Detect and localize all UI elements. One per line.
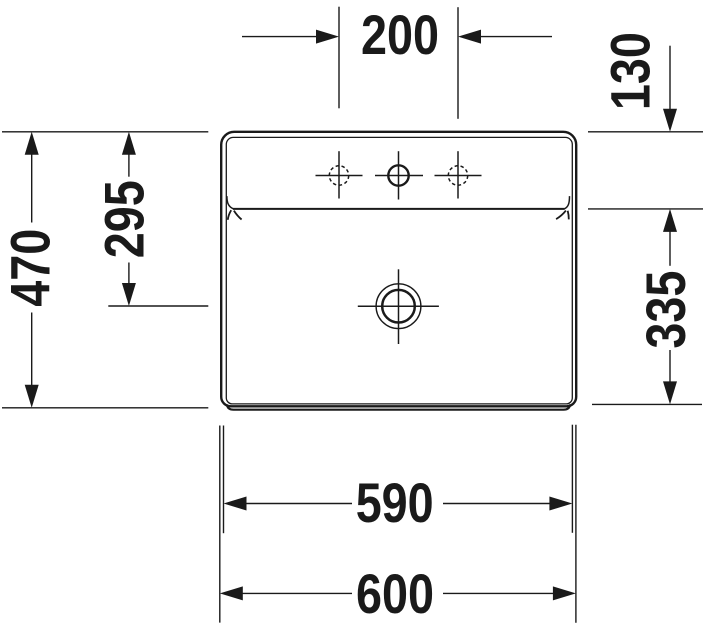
svg-text:590: 590	[356, 472, 434, 534]
svg-text:600: 600	[356, 563, 434, 625]
svg-text:335: 335	[635, 271, 697, 349]
svg-text:295: 295	[93, 180, 155, 258]
svg-text:470: 470	[0, 229, 62, 307]
svg-text:200: 200	[361, 4, 439, 66]
svg-text:130: 130	[599, 32, 661, 110]
